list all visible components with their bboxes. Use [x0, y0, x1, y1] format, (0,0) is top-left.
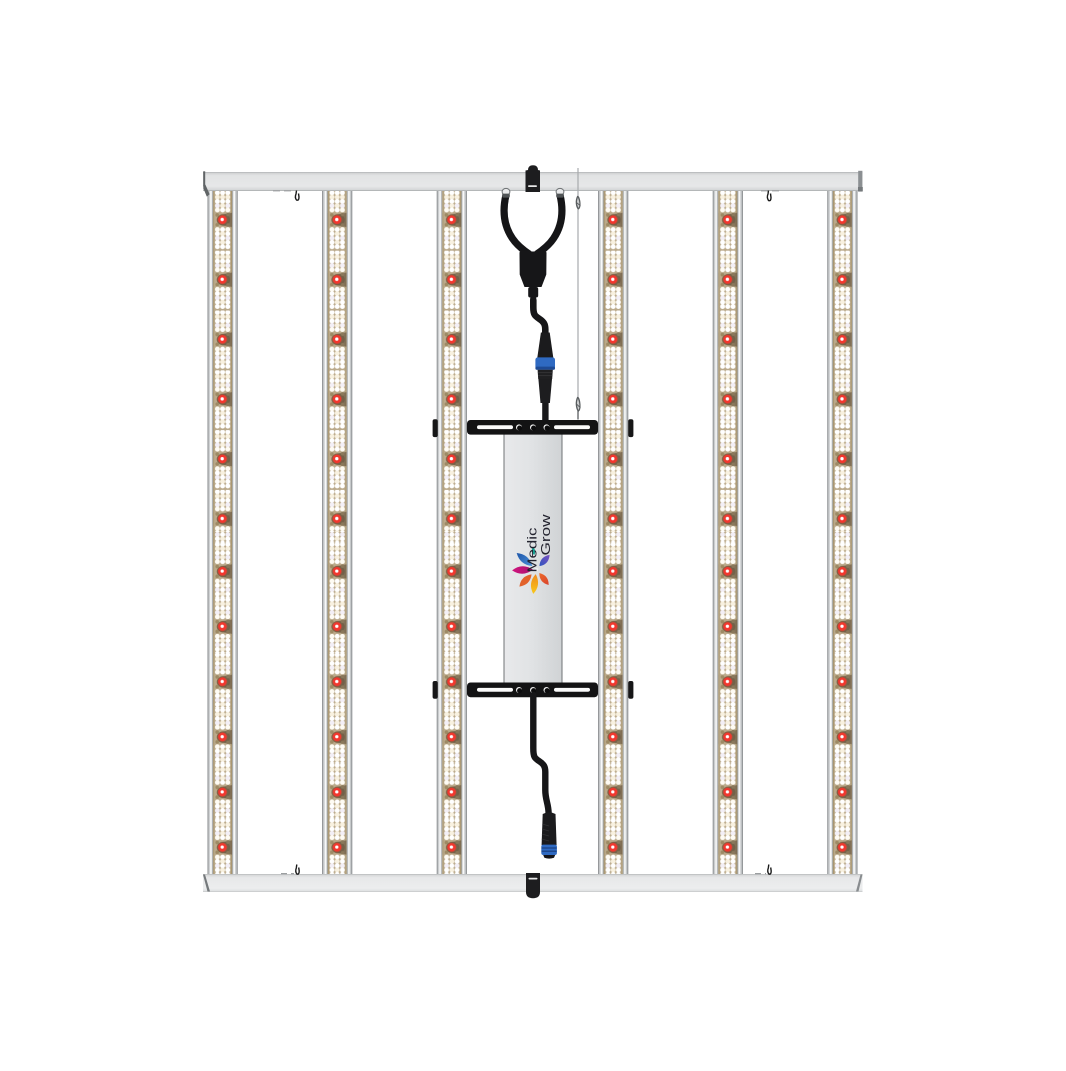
svg-text:Grow: Grow: [538, 514, 553, 556]
